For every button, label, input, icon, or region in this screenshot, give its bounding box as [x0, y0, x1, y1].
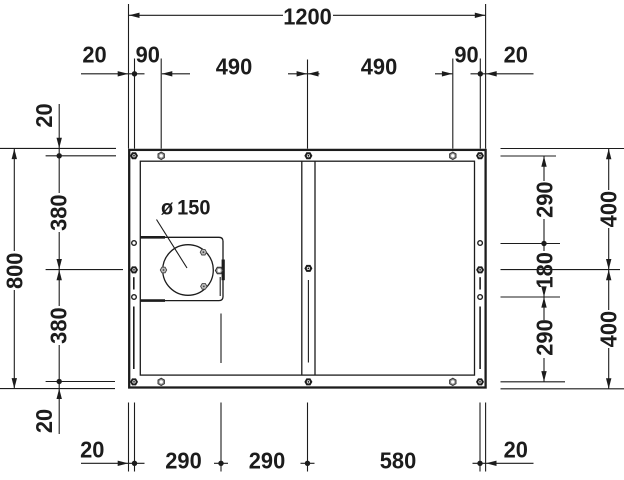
- svg-text:90: 90: [454, 42, 478, 68]
- svg-text:290: 290: [165, 448, 201, 474]
- svg-text:20: 20: [31, 409, 57, 433]
- svg-text:20: 20: [82, 42, 106, 68]
- svg-text:290: 290: [532, 319, 558, 355]
- svg-text:400: 400: [596, 311, 622, 347]
- svg-text:20: 20: [80, 437, 104, 463]
- svg-text:490: 490: [361, 54, 397, 80]
- svg-text:180: 180: [532, 252, 558, 288]
- svg-text:290: 290: [532, 181, 558, 217]
- svg-text:580: 580: [380, 448, 416, 474]
- svg-text:20: 20: [504, 437, 528, 463]
- svg-text:ø 150: ø 150: [161, 196, 210, 220]
- svg-text:380: 380: [46, 307, 72, 343]
- svg-text:380: 380: [46, 194, 72, 230]
- svg-text:290: 290: [249, 448, 285, 474]
- svg-text:1200: 1200: [283, 4, 332, 30]
- svg-text:90: 90: [136, 42, 160, 68]
- svg-text:20: 20: [504, 42, 528, 68]
- svg-text:400: 400: [596, 191, 622, 227]
- svg-text:800: 800: [2, 253, 28, 289]
- svg-text:490: 490: [216, 54, 252, 80]
- svg-text:20: 20: [31, 103, 57, 127]
